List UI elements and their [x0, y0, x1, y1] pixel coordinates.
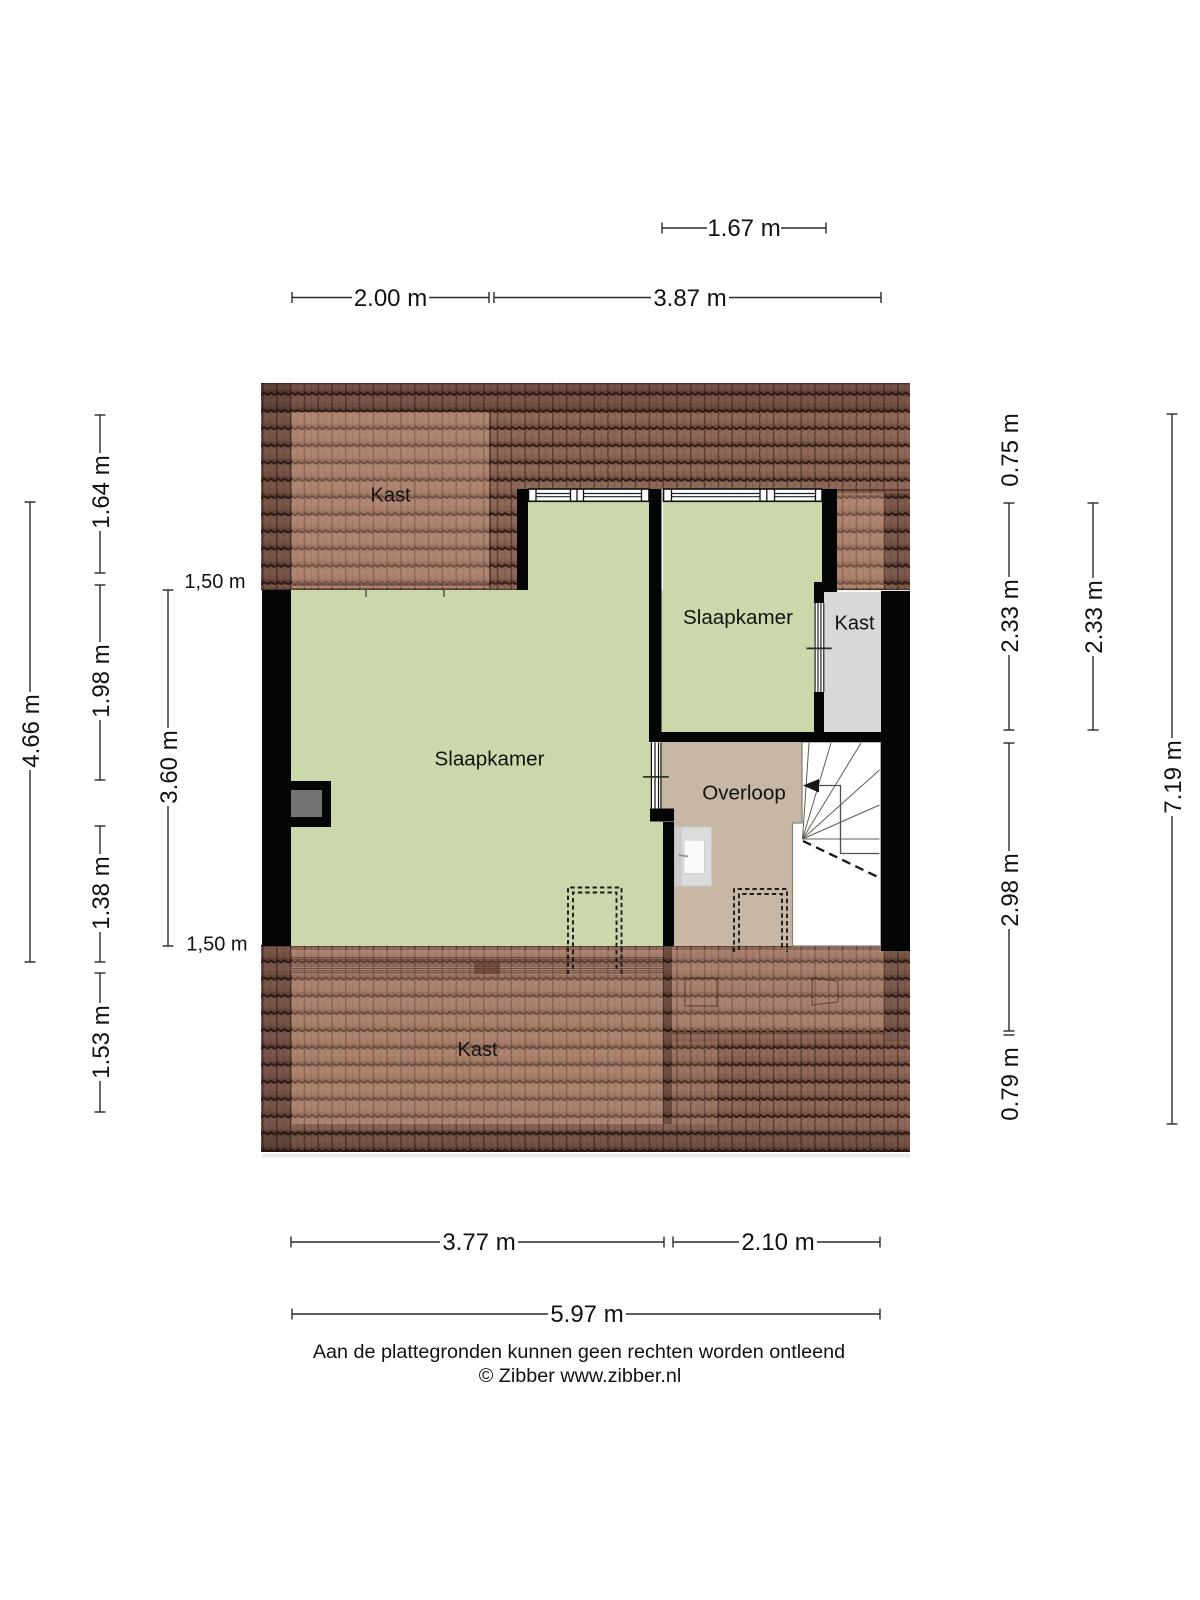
svg-text:1.98 m: 1.98 m — [88, 644, 115, 717]
svg-text:5.97 m: 5.97 m — [550, 1301, 623, 1328]
svg-text:2.33 m: 2.33 m — [1081, 580, 1108, 653]
svg-text:2.00 m: 2.00 m — [354, 285, 427, 312]
svg-text:Aan de plattegronden kunnen ge: Aan de plattegronden kunnen geen rechten… — [313, 1341, 845, 1363]
svg-text:© Zibber www.zibber.nl: © Zibber www.zibber.nl — [479, 1365, 682, 1387]
svg-text:2.33 m: 2.33 m — [997, 579, 1024, 652]
svg-text:1.53 m: 1.53 m — [88, 1005, 115, 1078]
svg-text:0.75 m: 0.75 m — [997, 413, 1024, 486]
svg-text:3.60 m: 3.60 m — [156, 730, 183, 803]
svg-text:1,50 m: 1,50 m — [186, 934, 247, 956]
svg-text:3.87 m: 3.87 m — [653, 285, 726, 312]
svg-text:1.38 m: 1.38 m — [88, 856, 115, 929]
svg-text:Overloop: Overloop — [702, 782, 786, 805]
svg-text:2.10 m: 2.10 m — [741, 1229, 814, 1256]
svg-text:Slaapkamer: Slaapkamer — [435, 748, 545, 771]
svg-text:7.19 m: 7.19 m — [1160, 740, 1187, 813]
svg-text:Kast: Kast — [370, 485, 410, 507]
svg-text:0.79 m: 0.79 m — [997, 1047, 1024, 1120]
svg-text:Slaapkamer: Slaapkamer — [683, 606, 793, 629]
svg-text:1.64 m: 1.64 m — [88, 455, 115, 528]
svg-text:Kast: Kast — [834, 613, 874, 635]
svg-text:4.66 m: 4.66 m — [18, 694, 45, 767]
svg-text:1.67 m: 1.67 m — [707, 215, 780, 242]
svg-text:Kast: Kast — [457, 1039, 497, 1061]
svg-text:2.98 m: 2.98 m — [997, 853, 1024, 926]
svg-text:1,50 m: 1,50 m — [184, 571, 245, 593]
svg-text:3.77 m: 3.77 m — [442, 1229, 515, 1256]
